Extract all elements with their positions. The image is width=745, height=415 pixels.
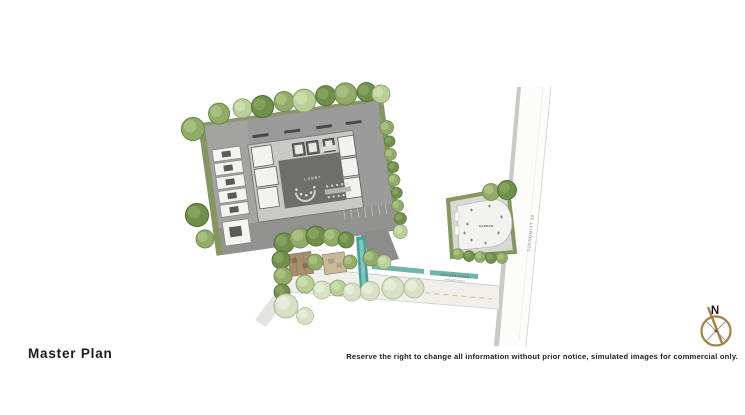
garden-label: GARDEN: [479, 224, 494, 228]
master-plan-canvas: SUKHUMVIT 39 ACCESS ROAD (PRIVATE ROAD): [0, 0, 745, 415]
garden-plot: GARDEN: [448, 181, 517, 264]
page-title: Master Plan: [28, 346, 113, 361]
building-core: LOBBY: [248, 130, 364, 222]
disclaimer-text: Reserve the right to change all informat…: [346, 352, 738, 361]
compass: N: [702, 305, 731, 346]
